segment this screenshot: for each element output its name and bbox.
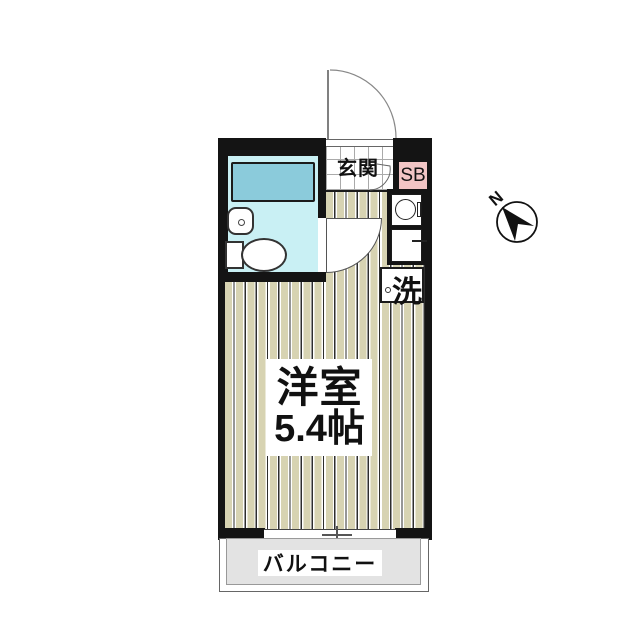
room-name: 洋室 [276,366,362,410]
entrance-threshold [326,139,393,147]
bathroom-door-opening [318,218,326,272]
room-label-box: 洋室 5.4帖 [267,359,372,456]
faucet-icon [417,202,421,217]
washer-label: 洗 [392,267,422,311]
shoe-box: SB [399,162,427,189]
kitchen-counter [391,229,422,262]
north-label: N [485,187,507,209]
balcony-label: バルコニー [263,548,378,578]
washer-hookup-icon [385,287,391,293]
burner-icon [395,199,416,220]
floor-plan: 玄関 SB 洗 洋室 5.4帖 バルコニー N [0,0,640,640]
compass: N [480,180,550,250]
entrance-door-arc-icon [330,70,396,138]
bathtub-icon [231,162,315,202]
toilet-icon [241,238,287,272]
cabinet-handle-icon [412,240,427,242]
compass-ring-icon [497,202,537,242]
entrance-label: 玄関 [337,152,379,181]
shoe-box-label: SB [400,165,425,187]
compass-needle-icon [502,207,534,241]
kitchen-unit [387,189,427,265]
room-size: 5.4帖 [274,410,365,450]
balcony-label-box: バルコニー [258,550,382,576]
sink-icon [227,207,254,235]
